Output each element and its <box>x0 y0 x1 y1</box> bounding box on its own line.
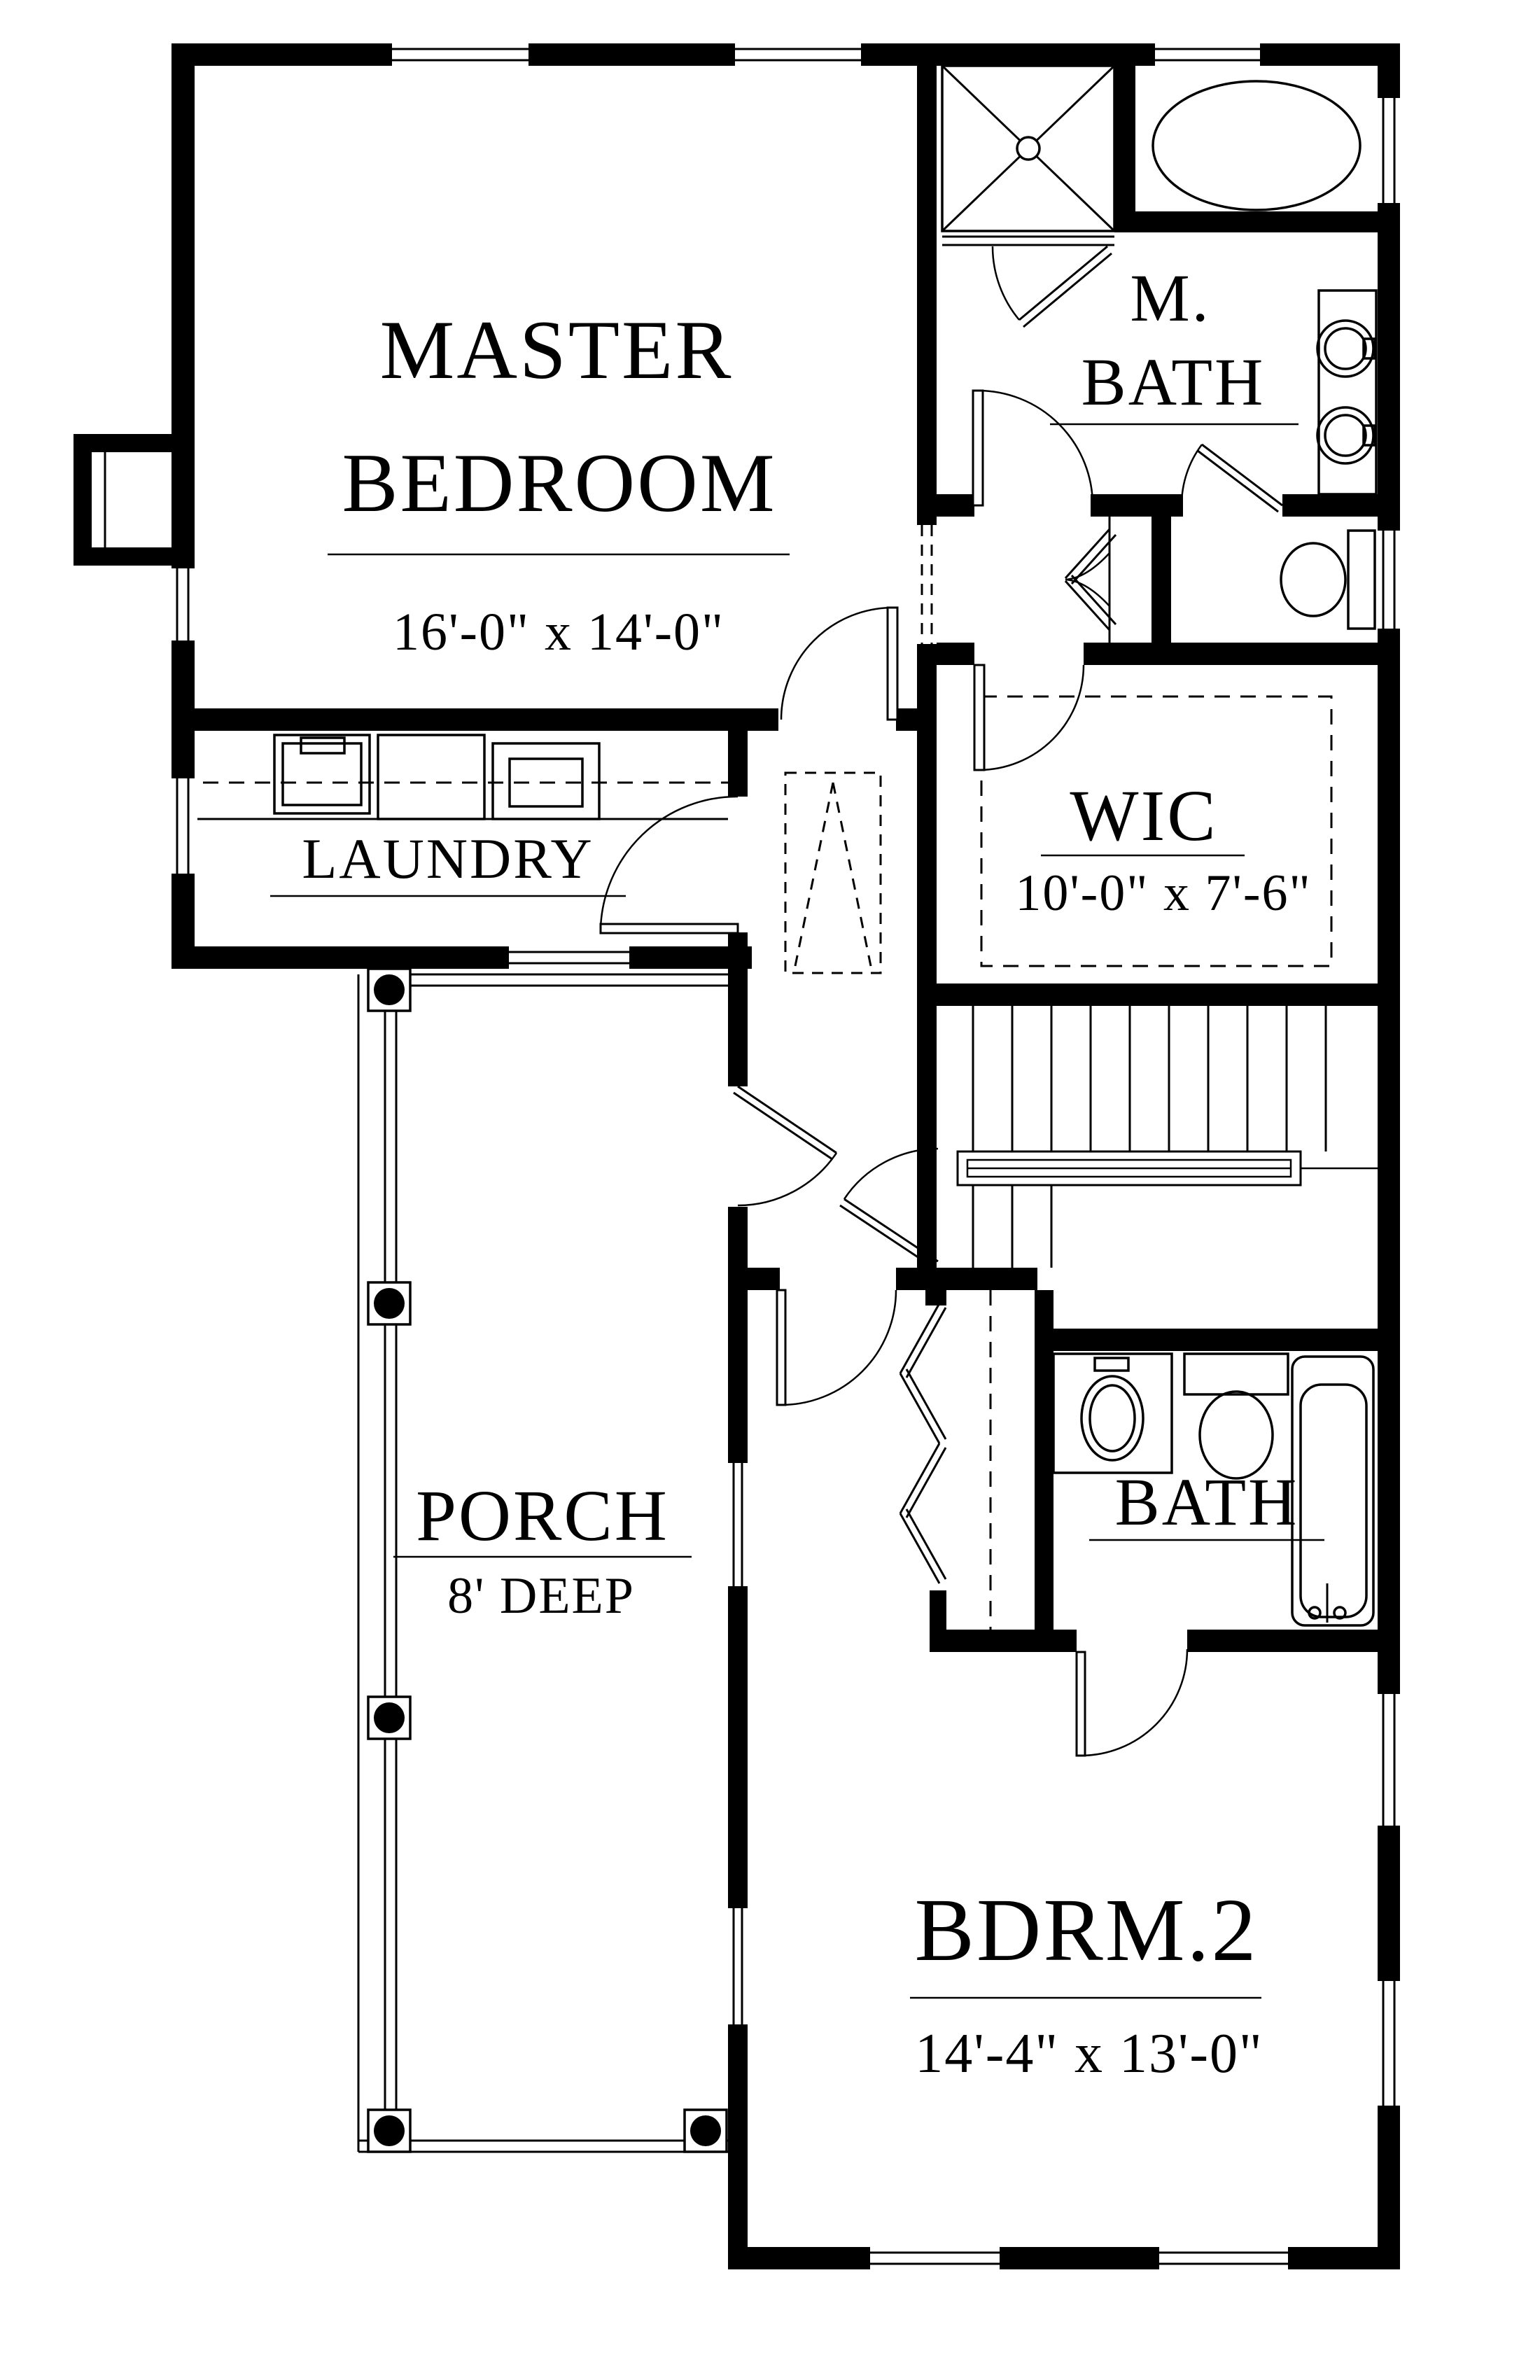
dryer <box>493 743 599 819</box>
wic-dimensions: 10'-0" x 7'-6" <box>1015 864 1311 922</box>
porch-column <box>368 1697 410 1739</box>
bath2-tub <box>1292 1357 1373 1625</box>
window-master-north-1 <box>392 43 528 66</box>
porch-column <box>368 1282 410 1324</box>
label-porch: PORCH 8' DEEP <box>393 1476 692 1625</box>
laundry-sink <box>274 735 370 813</box>
door-master-bedroom <box>781 608 897 720</box>
door-wic <box>974 665 1084 770</box>
porch-label: PORCH <box>416 1476 669 1556</box>
window-bdrm2-west-2 <box>728 1908 748 2024</box>
linen-closet-bifold-door <box>1065 517 1116 643</box>
door-bdrm2-hall <box>777 1290 896 1405</box>
wall-east <box>1378 43 1400 2269</box>
cased-opening-master-hall <box>917 525 937 644</box>
shower-door <box>993 246 1112 327</box>
door-porch <box>734 1086 836 1205</box>
window-bdrm2-east-2 <box>1378 1981 1400 2106</box>
wall-closet-south <box>930 1630 1077 1652</box>
label-laundry: LAUNDRY <box>270 827 626 896</box>
porch-column <box>368 2110 410 2152</box>
label-bdrm2: BDRM.2 14'-4" x 13'-0" <box>910 1880 1263 2085</box>
wall-master-east-lower <box>917 644 937 1270</box>
porch-column <box>685 2110 727 2152</box>
porch-depth: 8' DEEP <box>447 1567 635 1625</box>
wall-mbath-south-1 <box>937 494 974 517</box>
wall-master-south-left <box>171 708 778 731</box>
stair-treads-lower <box>973 1186 1051 1268</box>
attic-access <box>785 773 881 973</box>
floor-plan-page: MASTER BEDROOM 16'-0" x 14'-0" M. BATH W… <box>0 0 1540 2380</box>
chimney <box>73 434 195 566</box>
window-master-west <box>171 568 195 640</box>
wall-tub-nook-south <box>1135 211 1378 232</box>
stair-treads-upper <box>973 1006 1326 1151</box>
master-vanity-double-sink <box>1317 290 1376 494</box>
wall-master-east-upper <box>917 66 937 525</box>
bath2-toilet <box>1184 1354 1288 1478</box>
label-master-bath: M. BATH <box>1050 260 1298 424</box>
label-wic: WIC 10'-0" x 7'-6" <box>1015 776 1311 922</box>
wall-laundry-east-lower <box>728 932 748 946</box>
window-bdrm2-south-2 <box>1159 2247 1288 2269</box>
bdrm2-dimensions: 14'-4" x 13'-0" <box>915 2023 1263 2085</box>
wic-label: WIC <box>1070 776 1217 856</box>
master-bedroom-label-line2: BEDROOM <box>342 436 776 529</box>
window-laundry-south <box>509 946 629 969</box>
master-toilet <box>1281 531 1375 629</box>
master-bedroom-dimensions: 16'-0" x 14'-0" <box>393 603 724 661</box>
window-mbath-east <box>1378 98 1400 203</box>
wall-toilet-room-west <box>1151 517 1171 643</box>
wall-wic-south <box>937 983 1378 1006</box>
window-toilet-east <box>1378 531 1400 629</box>
window-laundry-west <box>171 778 195 874</box>
window-bdrm2-west-1 <box>728 1463 748 1586</box>
bath-label: BATH <box>1115 1464 1299 1539</box>
wall-wic-north-2 <box>1084 643 1378 665</box>
wall-closet-jamb-bottom <box>930 1590 946 1630</box>
wall-bath-south <box>1187 1630 1378 1652</box>
wall-bath-north <box>1053 1329 1378 1351</box>
porch-door-opening <box>728 1086 748 1207</box>
wall-hall-south-2 <box>896 1268 1037 1290</box>
master-bath-label-line1: M. <box>1130 260 1210 335</box>
wall-mbath-south-3 <box>1282 494 1378 517</box>
master-bath-label-line2: BATH <box>1081 344 1266 419</box>
door-master-bath <box>973 391 1093 505</box>
wall-south <box>728 2247 1400 2269</box>
wall-master-south-right <box>896 708 937 731</box>
wall-laundry-south <box>171 946 752 969</box>
wall-shower-divider <box>1114 66 1135 232</box>
wall-bath-west <box>1035 1290 1053 1649</box>
porch-structure <box>358 969 728 2152</box>
wall-wic-north-1 <box>937 643 974 665</box>
master-bedroom-label-line1: MASTER <box>380 303 734 396</box>
wall-hall-south-1 <box>748 1268 780 1290</box>
laundry-label: LAUNDRY <box>302 827 594 890</box>
door-toilet-room <box>1182 444 1282 512</box>
door-bdrm2 <box>1077 1649 1187 1756</box>
master-bathtub-oval <box>1153 81 1360 210</box>
wall-closet-jamb-top <box>925 1290 946 1305</box>
window-master-north-2 <box>735 43 861 66</box>
shower <box>942 66 1114 245</box>
stair-handrail <box>958 1151 1301 1185</box>
washer <box>378 735 484 819</box>
bdrm2-label: BDRM.2 <box>915 1880 1259 1980</box>
floor-plan-drawing: MASTER BEDROOM 16'-0" x 14'-0" M. BATH W… <box>0 0 1540 2380</box>
window-mbath-north <box>1155 43 1260 66</box>
wall-mbath-south-2 <box>1091 494 1183 517</box>
shower-drain-icon <box>1017 137 1039 160</box>
closet-bifold-doors <box>900 1303 946 1583</box>
stairs <box>958 1006 1378 1268</box>
window-bdrm2-east-1 <box>1378 1694 1400 1826</box>
door-laundry <box>601 797 738 933</box>
bath2-vanity-sink <box>1053 1354 1172 1473</box>
faucet-icon <box>301 738 344 753</box>
label-master-bedroom: MASTER BEDROOM 16'-0" x 14'-0" <box>328 303 790 661</box>
faucet-icon <box>1095 1358 1128 1371</box>
porch-column <box>368 969 410 1011</box>
wall-laundry-east-upper <box>728 731 748 797</box>
label-bath: BATH <box>1089 1464 1324 1540</box>
window-bdrm2-south-1 <box>870 2247 1000 2269</box>
